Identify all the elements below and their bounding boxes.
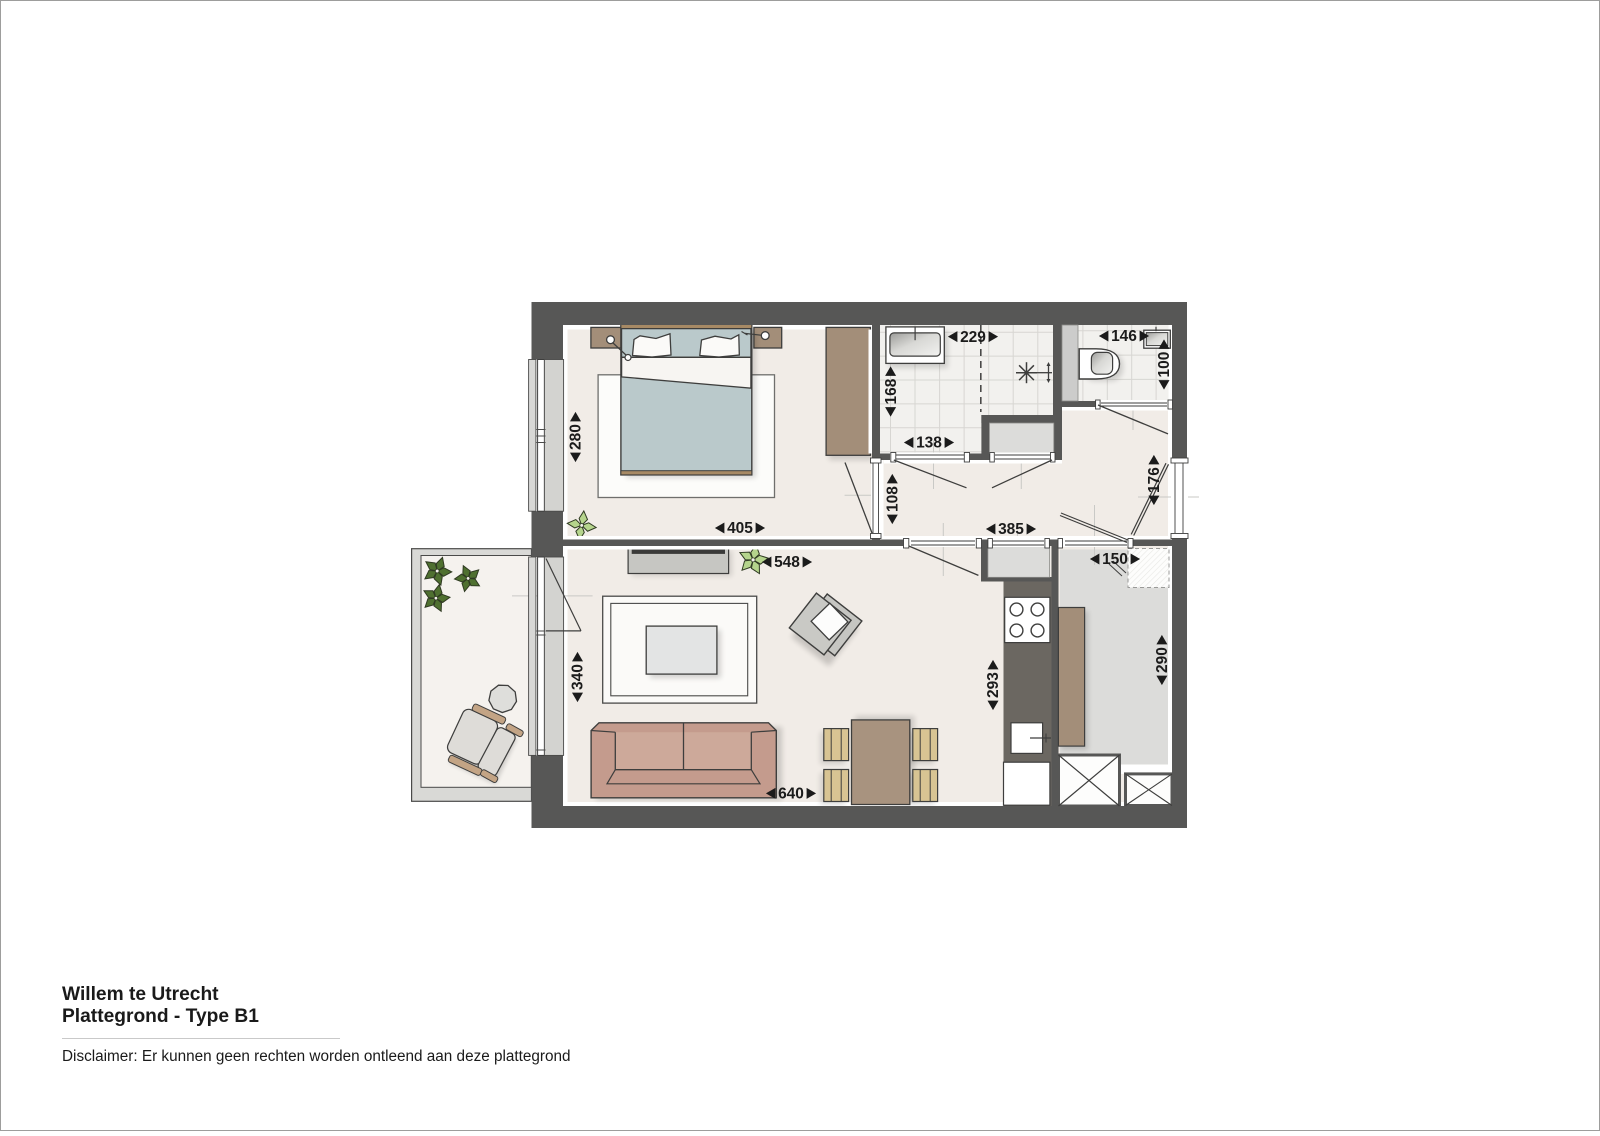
svg-text:138: 138 <box>916 435 942 452</box>
svg-text:548: 548 <box>774 554 800 571</box>
svg-text:340: 340 <box>570 664 587 690</box>
svg-text:293: 293 <box>985 672 1002 698</box>
svg-text:150: 150 <box>1102 551 1128 568</box>
svg-text:280: 280 <box>568 424 585 450</box>
svg-text:108: 108 <box>885 486 902 512</box>
svg-text:176: 176 <box>1146 467 1163 493</box>
svg-text:229: 229 <box>960 329 986 346</box>
svg-text:290: 290 <box>1154 647 1171 673</box>
svg-text:405: 405 <box>727 520 753 537</box>
svg-text:385: 385 <box>998 521 1024 538</box>
svg-text:640: 640 <box>778 786 804 803</box>
svg-text:100: 100 <box>1156 352 1173 378</box>
svg-text:146: 146 <box>1111 328 1137 345</box>
svg-text:168: 168 <box>883 378 900 404</box>
